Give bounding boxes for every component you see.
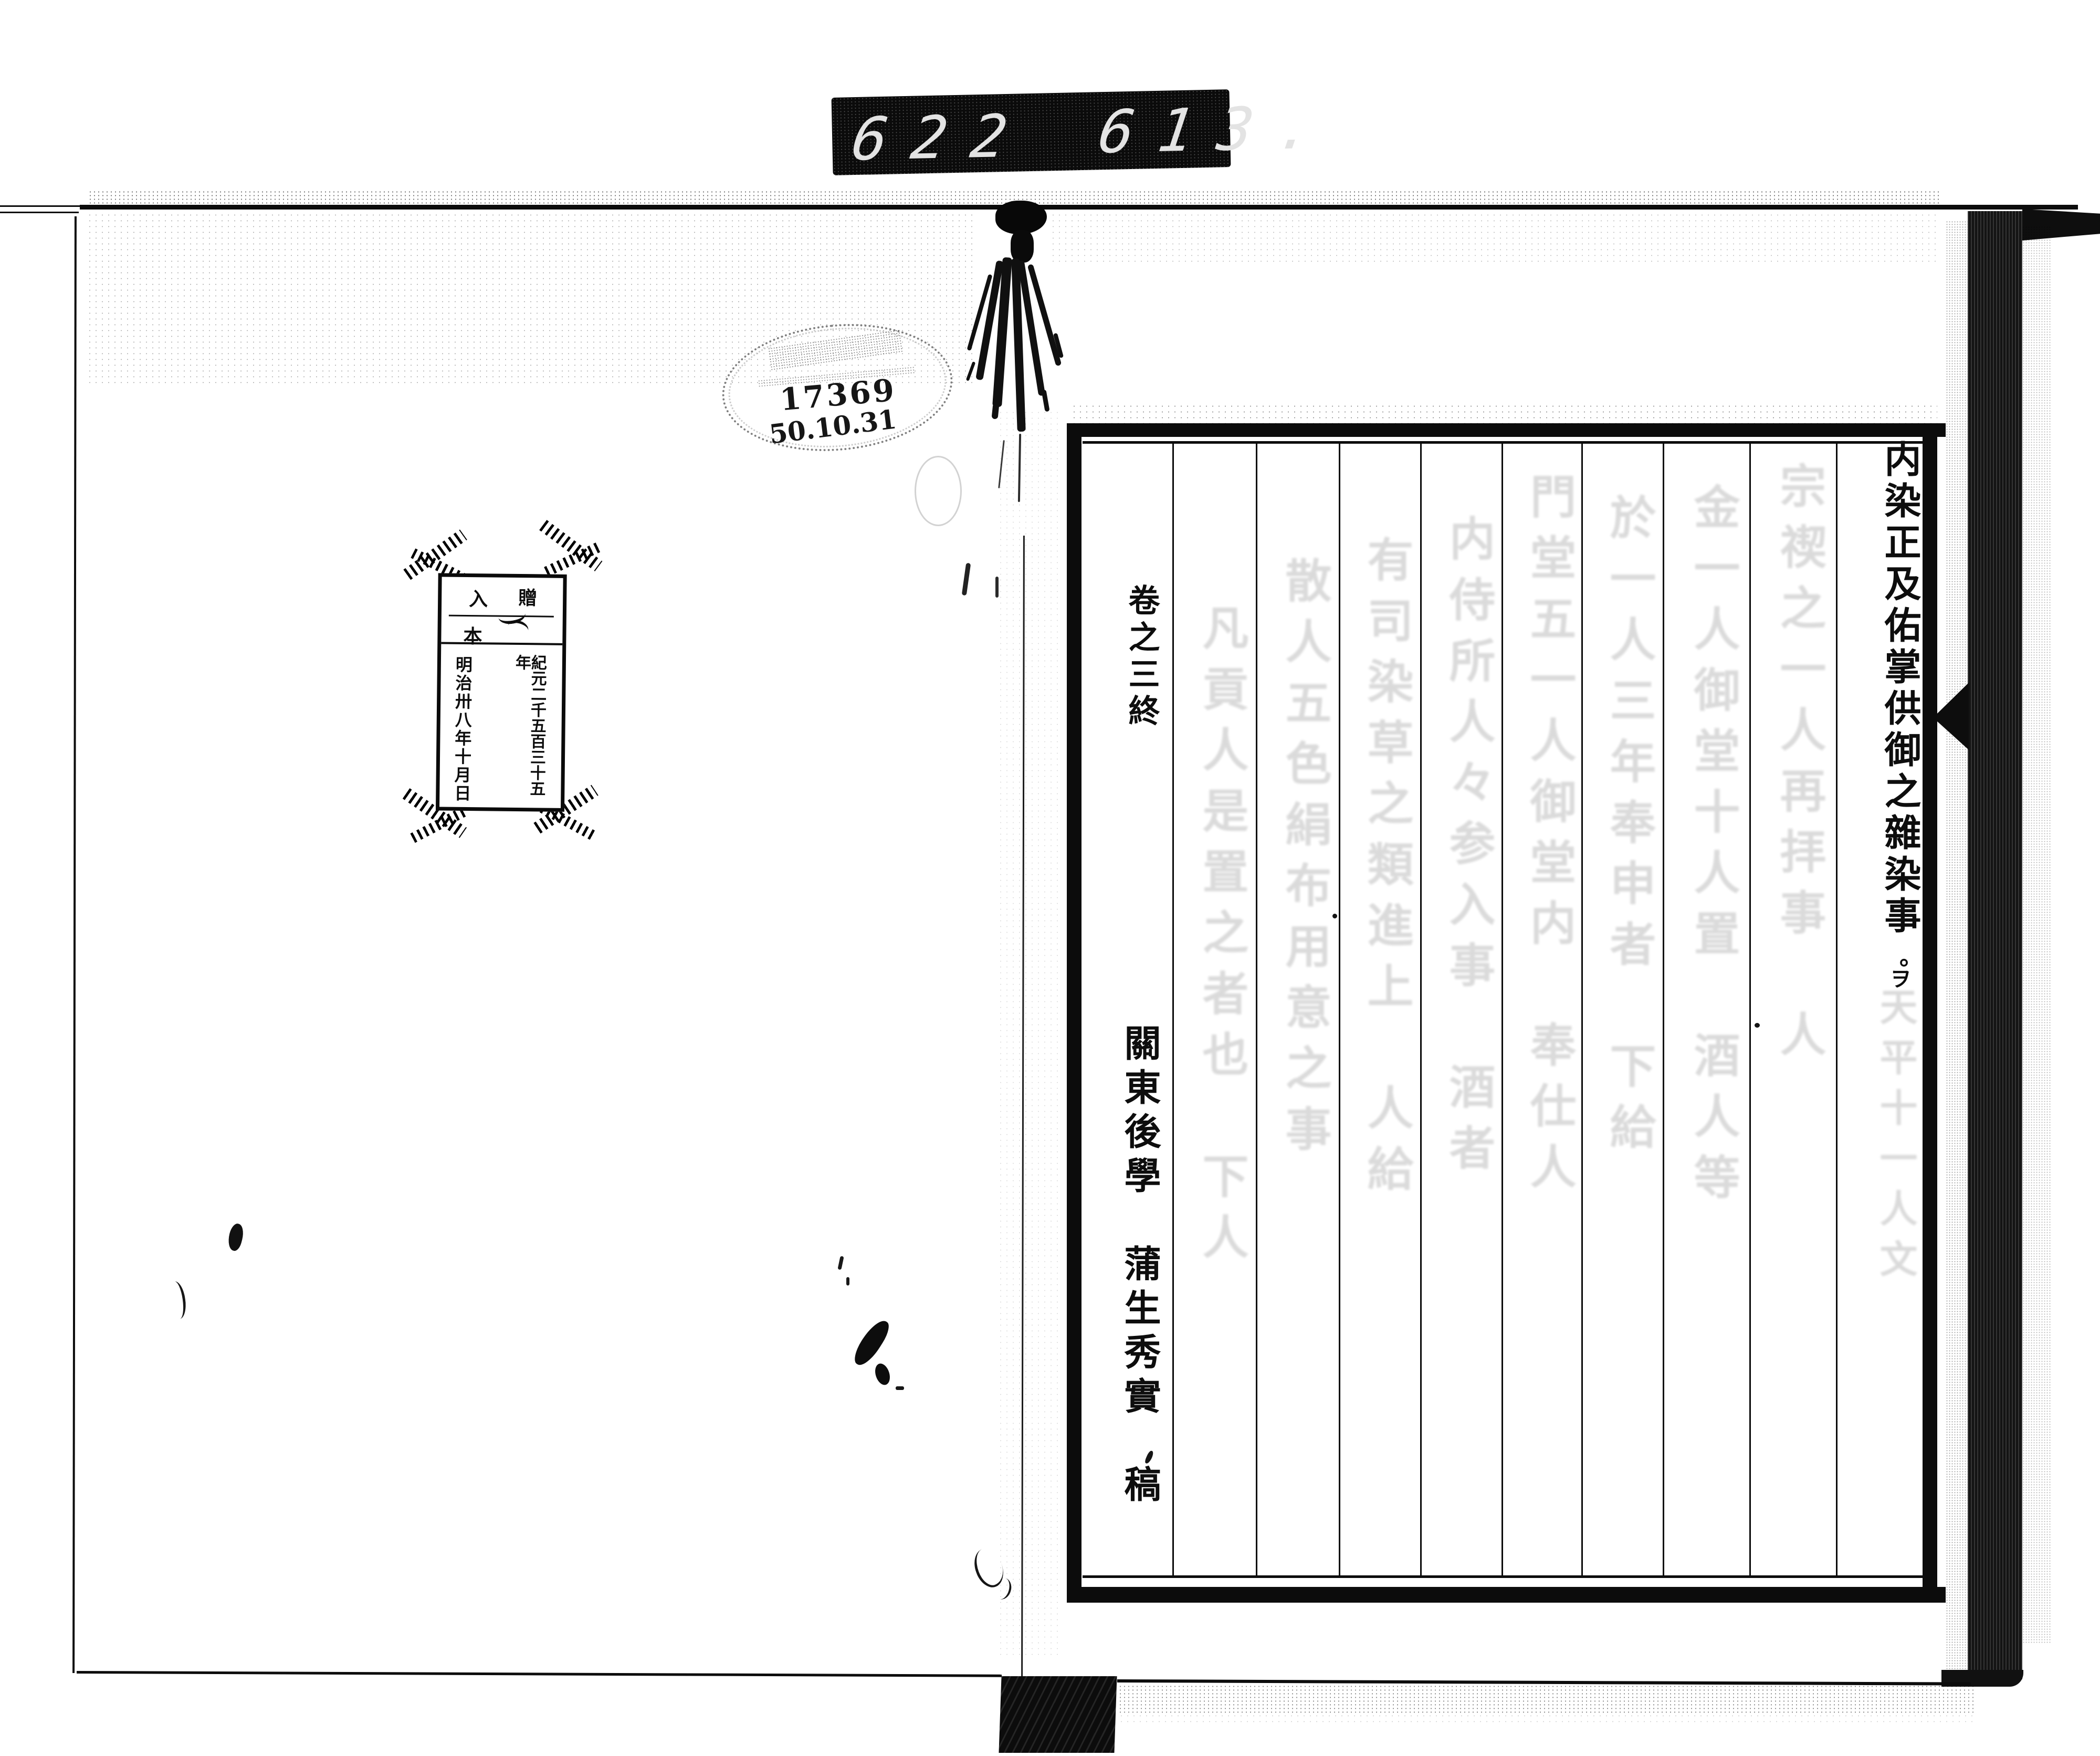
column-separator-6 — [1581, 444, 1583, 1575]
bookplate-divider — [441, 642, 562, 645]
frame-border-top-thin — [1083, 441, 1929, 444]
fore-edge-speckle-right — [2022, 226, 2051, 1644]
fore-edge-band — [1968, 211, 2022, 1679]
binding-ink-drip-2 — [1041, 390, 1049, 412]
top-edge-line — [80, 205, 2078, 210]
top-edge-thin-line-a — [0, 205, 83, 207]
bookplate-donate-label: 贈 — [518, 583, 538, 610]
column-separator-3 — [1339, 444, 1340, 1575]
film-frame-counter: 622 613. — [832, 89, 1231, 175]
gutter-faint-ring — [915, 456, 962, 526]
right-page-bottom-speckle — [1118, 1685, 1974, 1713]
ghost-column-8: 宗禊之一人再拝事 人 — [1761, 462, 1823, 1071]
top-edge-thin-line-b — [0, 212, 79, 213]
frame-border-bottom-thick — [1067, 1587, 1946, 1603]
fore-edge-texture — [1968, 211, 2022, 1679]
gutter-dust — [997, 410, 1060, 1659]
binding-bottom-cloth — [999, 1676, 1117, 1753]
binding-knot-blob — [995, 201, 1047, 234]
frame-top-dust — [1071, 403, 1937, 424]
fore-edge-speckle-left — [1946, 221, 1969, 1670]
gutter-mark-1 — [962, 563, 971, 596]
binding-knot-neck — [1011, 230, 1034, 263]
right-page-top-dust — [1050, 212, 1937, 262]
ghost-column-4: 内侍所人々参入事 酒者 — [1430, 515, 1492, 1185]
right-page-bottom-speckle-faint — [1118, 1713, 1974, 1727]
ghost-column-3: 有司染草之類進上 人給 — [1348, 536, 1410, 1206]
bookplate-era-column: 紀元二千五百三十五年 — [512, 654, 545, 808]
ink-blemish-s-curve — [850, 1316, 893, 1370]
bookplate-enter-label: 入 — [469, 584, 488, 611]
frame-border-top-thick — [1067, 423, 1946, 437]
accession-bookplate: 贈 入 本 紀元二千五百三十五年 明治卅八年十月日 — [430, 545, 606, 872]
author-attribution: 關東後學 蒲生秀實 稿 — [1102, 1024, 1158, 1509]
book-scan-page: 622 613. 17369 50.10.31 — [0, 0, 2100, 1756]
binding-cloth-texture — [999, 1676, 1117, 1753]
column-separator-4 — [1420, 444, 1422, 1575]
ink-blemish-3 — [846, 1277, 849, 1285]
bookplate-meiji-column: 明治卅八年十月日 — [453, 656, 471, 803]
ghost-column-1: 凡貢人是置之者也 下人 — [1183, 604, 1245, 1274]
ink-blemish-arc — [166, 1280, 188, 1320]
column-separator-1 — [1172, 444, 1174, 1575]
counter-left-digits: 622 — [847, 102, 1035, 174]
ink-blemish-s-tail — [873, 1362, 892, 1387]
left-page-bottom-edge — [77, 1671, 1002, 1677]
frame-border-bottom-thin — [1083, 1575, 1929, 1578]
column-separator-2 — [1256, 444, 1257, 1575]
frame-border-left — [1067, 423, 1081, 1603]
column-separator-7 — [1663, 444, 1664, 1575]
ink-blemish-dash — [896, 1386, 904, 1390]
ghost-column-2: 散人五色絹布用意之事 — [1266, 557, 1328, 1166]
counter-right-digits: 613. — [1094, 93, 1341, 167]
library-date-stamp: 17369 50.10.31 — [717, 315, 958, 460]
ink-dot-1 — [1332, 914, 1337, 918]
ink-dot-2 — [1755, 1023, 1760, 1028]
frame-border-right — [1923, 423, 1937, 1603]
ghost-column-5: 門堂五一人御堂内 奉仕人 — [1511, 473, 1573, 1204]
ghost-column-title-tail: 天平十一人文 — [1856, 987, 1914, 1290]
left-page-left-edge — [72, 216, 77, 1673]
volume-end-label: 卷之三終 — [1099, 584, 1157, 731]
column-separator-8 — [1749, 444, 1751, 1575]
bookplate-border: 贈 入 本 紀元二千五百三十五年 明治卅八年十月日 — [436, 573, 567, 812]
ink-blemish-1 — [226, 1222, 246, 1252]
ghost-column-6: 於一人三年奉申者 下給 — [1591, 494, 1653, 1164]
ink-blemish-2 — [837, 1256, 844, 1270]
ghost-column-7: 金一人御堂十人置 酒人等 — [1675, 483, 1737, 1214]
bookplate-volume-label: 本 — [463, 621, 482, 649]
chapter-title: 内染正及佑掌供御之雜染事 — [1842, 440, 1918, 938]
column-separator-5 — [1501, 444, 1503, 1575]
column-separator-9 — [1836, 444, 1837, 1575]
